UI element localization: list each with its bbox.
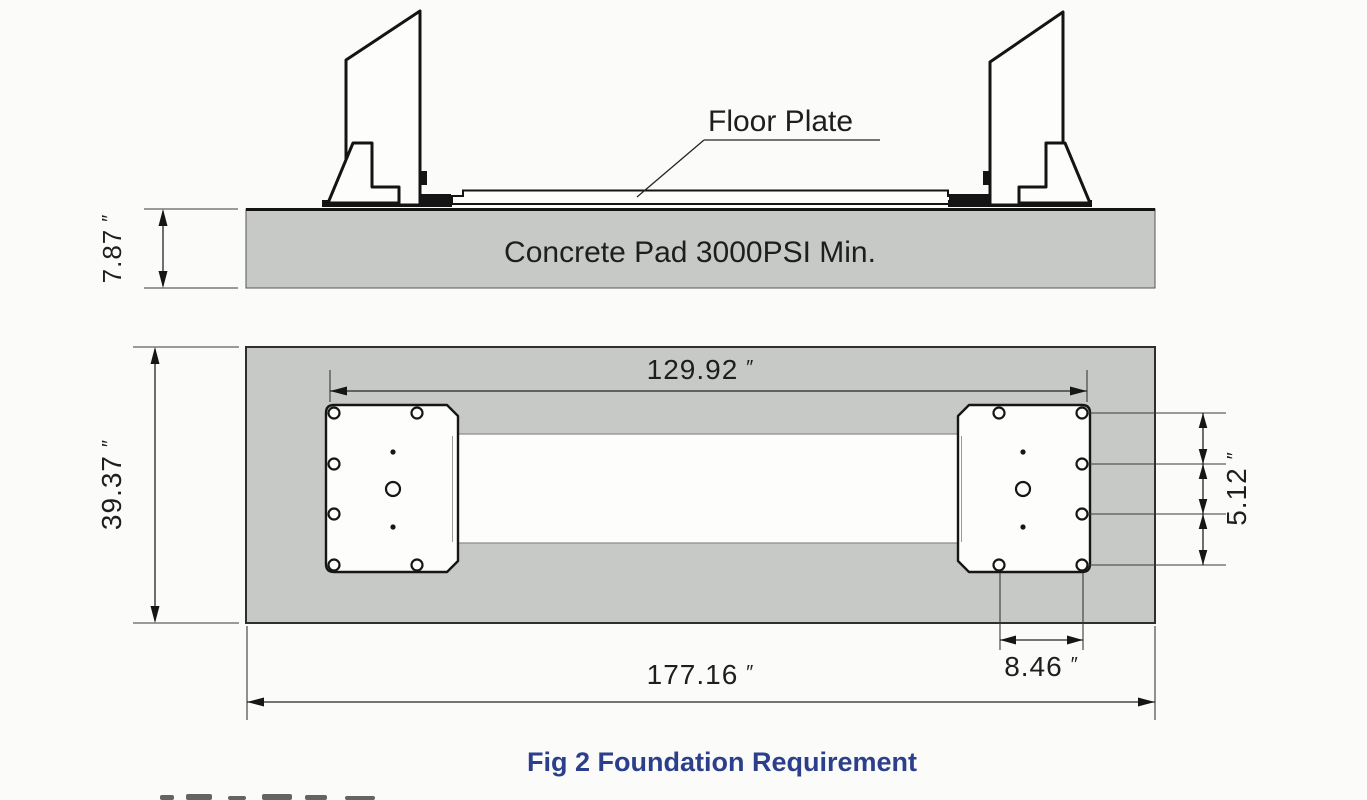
right-plate-junction — [949, 194, 991, 207]
arrow-left-icon — [1000, 636, 1016, 645]
arrow-down-icon — [151, 606, 160, 623]
plan-view: 129.92″ 39.37″ 5.12″ — [96, 347, 1252, 720]
pad-depth-dimension: 39.37″ — [96, 347, 239, 623]
bolt-span-value: 129.92″ — [647, 354, 754, 385]
cropped-text-artifact — [160, 794, 375, 800]
arrow-down-icon — [1199, 499, 1208, 514]
floor-plate-label: Floor Plate — [708, 105, 853, 138]
arrow-left-icon — [247, 698, 264, 707]
bolt-row-spacing-value: 5.12″ — [1221, 452, 1252, 526]
arrow-down-icon — [1199, 550, 1208, 565]
left-plate-junction — [417, 194, 451, 207]
pad-depth-value: 39.37″ — [96, 440, 127, 530]
floor-plate-callout: Floor Plate — [637, 105, 880, 197]
arrow-down-icon — [159, 271, 168, 288]
pad-overall-width-value: 177.16″ — [647, 659, 754, 690]
bolt-pair-spacing-value: 8.46″ — [1004, 651, 1078, 682]
foundation-diagram: Concrete Pad 3000PSI Min. Floor Plate — [0, 0, 1367, 800]
callout-leader-line — [637, 140, 704, 197]
side-view: Concrete Pad 3000PSI Min. Floor Plate — [97, 11, 1155, 288]
pad-thickness-value: 7.87″ — [97, 215, 127, 284]
arrow-right-icon — [1138, 698, 1155, 707]
floor-plate-section — [452, 191, 959, 205]
arrow-down-icon — [1199, 449, 1208, 464]
foundation-requirement-figure: Concrete Pad 3000PSI Min. Floor Plate — [0, 0, 1367, 800]
arrow-up-icon — [1199, 413, 1208, 428]
figure-caption: Fig 2 Foundation Requirement — [527, 747, 917, 777]
arrow-up-icon — [159, 209, 168, 226]
arrow-up-icon — [151, 347, 160, 364]
left-post-stop-tab — [419, 171, 427, 185]
arrow-right-icon — [1067, 636, 1083, 645]
arrow-up-icon — [1199, 464, 1208, 479]
right-post-stop-tab — [983, 171, 991, 185]
pad-thickness-dimension: 7.87″ — [97, 209, 238, 288]
concrete-pad-label: Concrete Pad 3000PSI Min. — [504, 236, 876, 269]
arrow-up-icon — [1199, 514, 1208, 529]
floor-plate-channel — [452, 434, 962, 543]
